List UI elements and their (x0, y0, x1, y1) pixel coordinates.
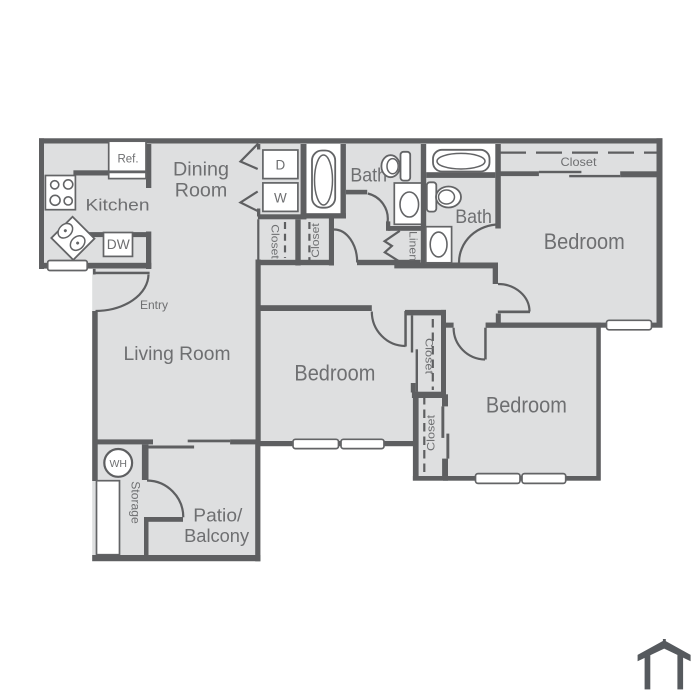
svg-text:Bedroom: Bedroom (486, 392, 567, 417)
svg-text:Closet: Closet (426, 415, 438, 451)
svg-text:Room: Room (175, 181, 228, 202)
svg-text:WH: WH (109, 458, 127, 470)
svg-text:Linen: Linen (407, 231, 419, 261)
svg-text:Closet: Closet (422, 338, 434, 374)
svg-text:D: D (276, 158, 286, 173)
svg-text:DW: DW (107, 236, 131, 252)
svg-text:Bath: Bath (455, 206, 492, 228)
svg-text:Closet: Closet (561, 155, 598, 169)
svg-text:Storage: Storage (129, 481, 141, 524)
svg-text:Dining: Dining (173, 160, 229, 181)
svg-text:Kitchen: Kitchen (86, 195, 150, 214)
svg-text:Ref.: Ref. (117, 154, 138, 166)
svg-text:Bedroom: Bedroom (294, 361, 375, 386)
svg-text:Patio/: Patio/ (193, 505, 242, 525)
svg-text:Living Room: Living Room (124, 343, 231, 365)
svg-text:Balcony: Balcony (184, 526, 249, 546)
svg-text:Closet: Closet (310, 223, 322, 258)
svg-text:Entry: Entry (140, 298, 168, 312)
svg-text:W: W (274, 191, 287, 206)
svg-text:Bedroom: Bedroom (544, 229, 625, 254)
svg-text:Closet: Closet (269, 224, 281, 259)
